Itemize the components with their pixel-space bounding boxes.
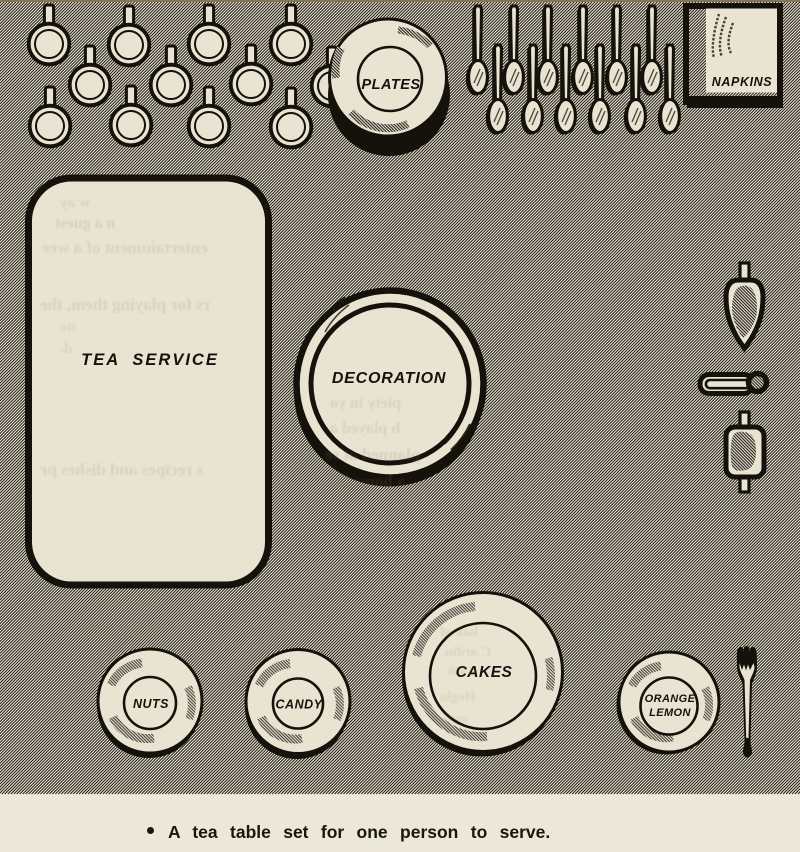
svg-text:DECORATION: DECORATION xyxy=(332,370,446,387)
svg-text:TEA SERVICE: TEA SERVICE xyxy=(81,351,219,369)
svg-text:CANDY: CANDY xyxy=(276,698,324,712)
svg-text:ORANGE: ORANGE xyxy=(645,693,696,705)
svg-text:LEMON: LEMON xyxy=(649,707,691,719)
svg-text:PLATES: PLATES xyxy=(361,77,420,93)
svg-text:NAPKINS: NAPKINS xyxy=(712,75,773,89)
svg-text:NUTS: NUTS xyxy=(133,697,169,711)
